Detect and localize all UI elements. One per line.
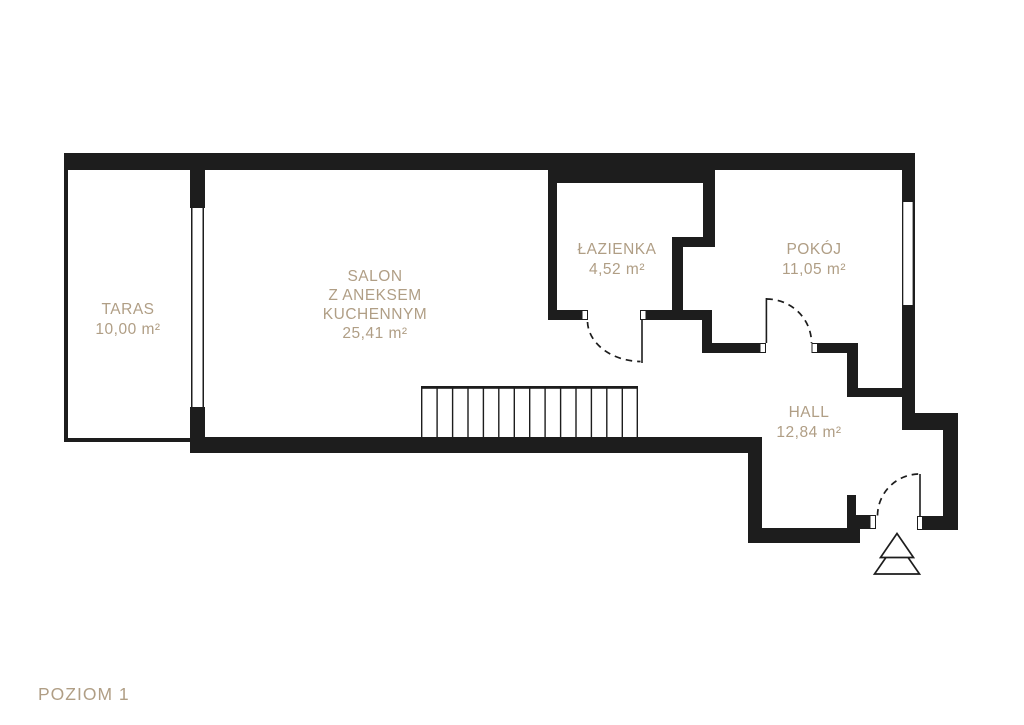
entrance-arrow-upper-triangle (881, 534, 914, 558)
wall-salon-bottom (190, 437, 762, 453)
salon-name-line3: KUCHENNYM (323, 305, 427, 324)
staircase (421, 386, 638, 437)
salon-name-line1: SALON (323, 267, 427, 286)
wall-top (64, 153, 915, 170)
floor-plan-drawing (0, 0, 1024, 725)
bathroom-door-post-left (582, 311, 588, 320)
wall-entry-left (855, 515, 871, 529)
entry-door (870, 474, 923, 530)
taras-area: 10,00 m² (95, 320, 160, 340)
bathroom-door-leaf (641, 320, 643, 363)
taras-name: TARAS (95, 300, 160, 320)
bathroom-door-post-right (641, 311, 647, 320)
bathroom-door (582, 311, 646, 364)
room-door-post-left (760, 344, 766, 353)
pokoj-label: POKÓJ 11,05 m² (782, 240, 846, 280)
room-door (760, 298, 818, 353)
wall-bath-room-upper (703, 168, 715, 247)
wall-right-upper (902, 168, 915, 202)
wall-bath-right-vertical (672, 237, 683, 320)
floor-plan: TARAS 10,00 m² SALON Z ANEKSEM KUCHENNYM… (0, 0, 1024, 725)
room-door-post-right (812, 344, 818, 353)
salon-name-line2: Z ANEKSEM (323, 286, 427, 305)
wall-hall-bottom (748, 528, 860, 543)
entry-door-post-right (918, 517, 923, 530)
taras-label: TARAS 10,00 m² (95, 300, 160, 340)
lazienka-area: 4,52 m² (578, 260, 657, 280)
lazienka-label: ŁAZIENKA 4,52 m² (578, 240, 657, 280)
entry-door-post-left (870, 516, 876, 529)
entry-door-swing-arc (878, 474, 920, 516)
wall-hall-left (748, 437, 762, 543)
entry-door-leaf (919, 474, 921, 516)
salon-area: 25,41 m² (323, 324, 427, 343)
hall-area: 12,84 m² (776, 423, 841, 443)
lazienka-name: ŁAZIENKA (578, 240, 657, 260)
level-title: POZIOM 1 (38, 684, 130, 705)
room-door-swing-arc (766, 299, 811, 343)
bathroom-door-swing-arc (588, 322, 641, 362)
salon-label: SALON Z ANEKSEM KUCHENNYM 25,41 m² (323, 267, 427, 343)
room-window (902, 202, 915, 305)
terrace-window (190, 208, 205, 407)
wall-salon-bath-divider (548, 168, 557, 320)
wall-terrace-bottom (64, 438, 192, 442)
hall-label: HALL 12,84 m² (776, 403, 841, 443)
wall-top-bathroom-thick (548, 168, 715, 183)
wall-entry-pillar (847, 495, 856, 528)
pokoj-name: POKÓJ (782, 240, 846, 260)
room-door-leaf (766, 298, 768, 343)
terrace-window-jamb-right (203, 208, 205, 407)
entrance-arrow-icon (875, 534, 920, 575)
wall-terrace-left (64, 168, 68, 442)
room-window-jamb-inner (902, 202, 903, 305)
wall-bump-right (943, 413, 958, 530)
pokoj-area: 11,05 m² (782, 260, 846, 280)
hall-name: HALL (776, 403, 841, 423)
room-window-jamb-outer (913, 202, 915, 305)
terrace-window-jamb-left (191, 208, 193, 407)
wall-terrace-salon-upper (190, 168, 205, 208)
wall-right-lower (902, 305, 915, 417)
wall-room-bottom-seg-right (818, 343, 858, 353)
